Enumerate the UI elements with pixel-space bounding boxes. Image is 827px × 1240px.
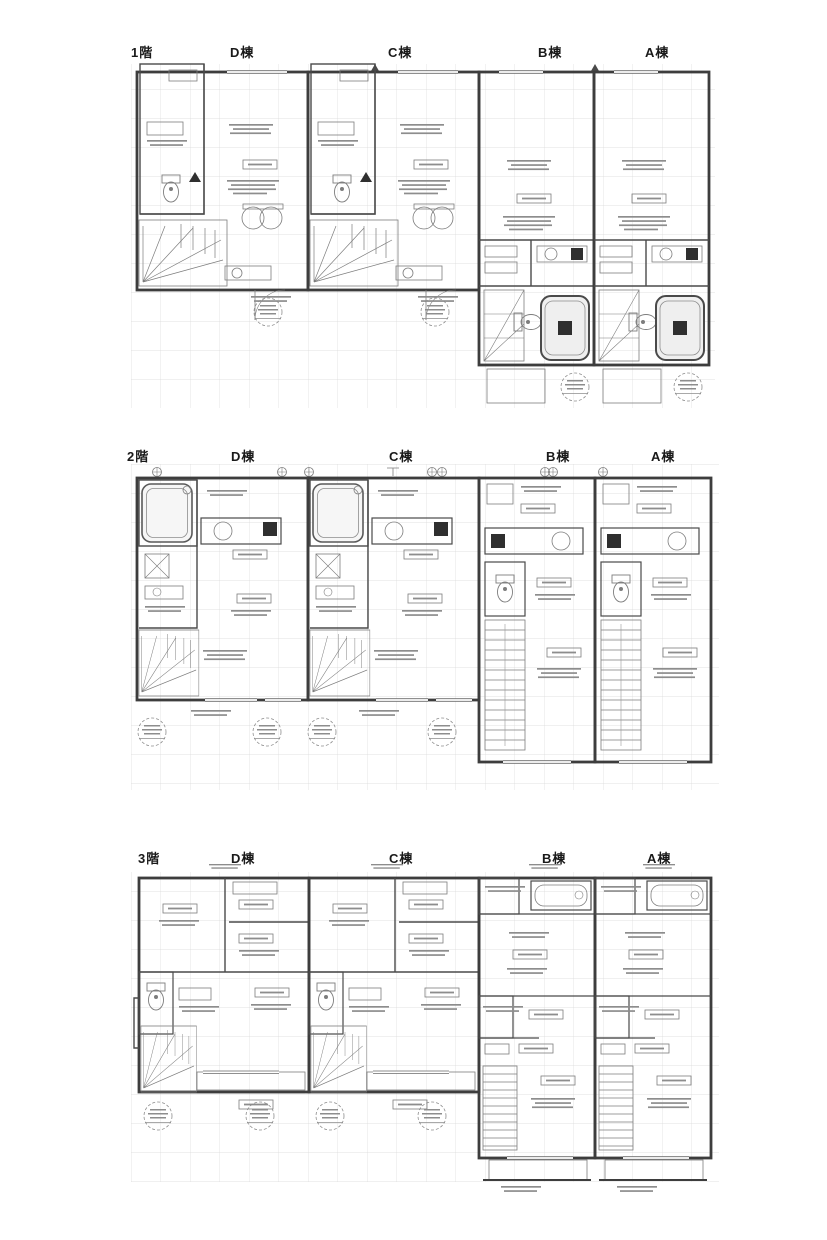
floor-2-label: 2階 [127,446,149,465]
floorplan-scan-page: 1階 D棟 C棟 B棟 A棟 2階 D棟 C棟 B棟 A棟 [0,0,827,1240]
floor-3-plan [131,862,723,1188]
dimension-note [643,864,675,869]
vent-symbol [438,468,447,477]
site-grid [131,464,719,790]
vent-symbol [305,468,314,477]
floor-2-unit-d-label: D棟 [231,446,255,465]
floor-2-unit-a-label: A棟 [651,446,675,465]
vent-symbol [428,468,437,477]
floor-1-unit-a-label: A棟 [645,42,669,61]
dimension-note [209,864,241,869]
floor-1-unit-c-label: C棟 [388,42,412,61]
vent-symbol [549,468,558,477]
floor-1-unit-d-label: D棟 [230,42,254,61]
vent-symbol [599,468,608,477]
vent-symbol [153,468,162,477]
site-grid [131,872,719,1182]
floor-1-plan [131,60,723,412]
floor-2-plan [131,464,723,794]
vent-symbol [278,468,287,477]
floor-2-unit-c-label: C棟 [389,446,413,465]
floor-1-label: 1階 [131,42,153,61]
floor-2-unit-b-label: B棟 [546,446,570,465]
site-grid [131,64,715,408]
dimension-note [371,864,403,869]
floor-1-unit-b-label: B棟 [538,42,562,61]
dimension-note [529,864,561,869]
